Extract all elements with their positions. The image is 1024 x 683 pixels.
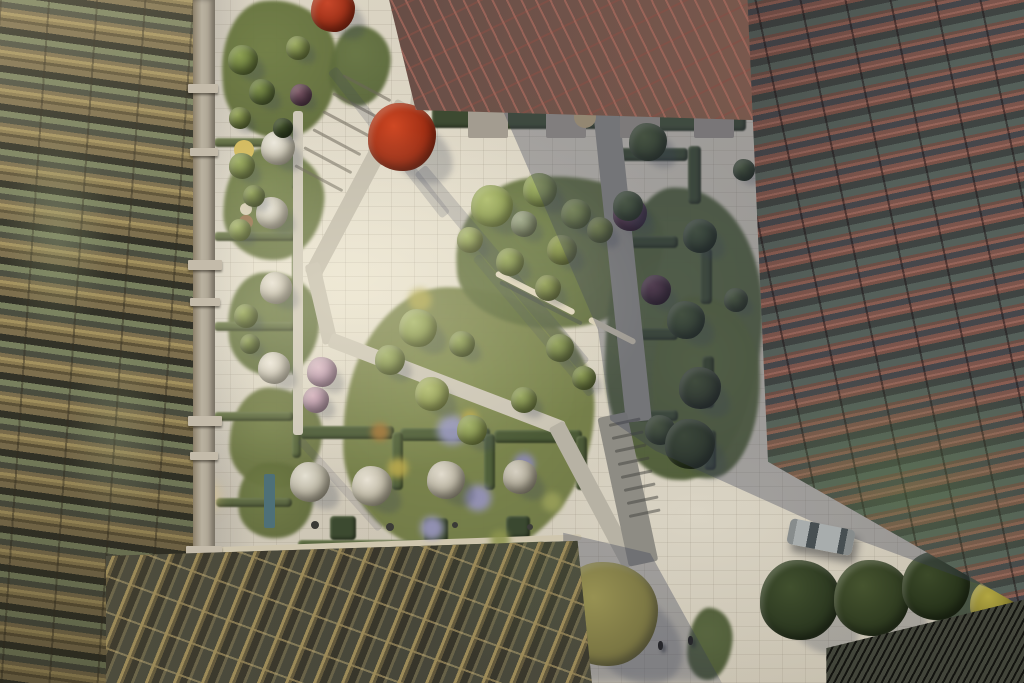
balcony-slab [190,148,218,156]
balcony-slab [188,260,222,270]
balcony-slab [190,298,220,306]
balcony-slab [190,452,218,460]
courtyard-aerial-rendering [0,0,1024,683]
balcony-slab [188,84,218,93]
balcony-slab [188,416,222,426]
